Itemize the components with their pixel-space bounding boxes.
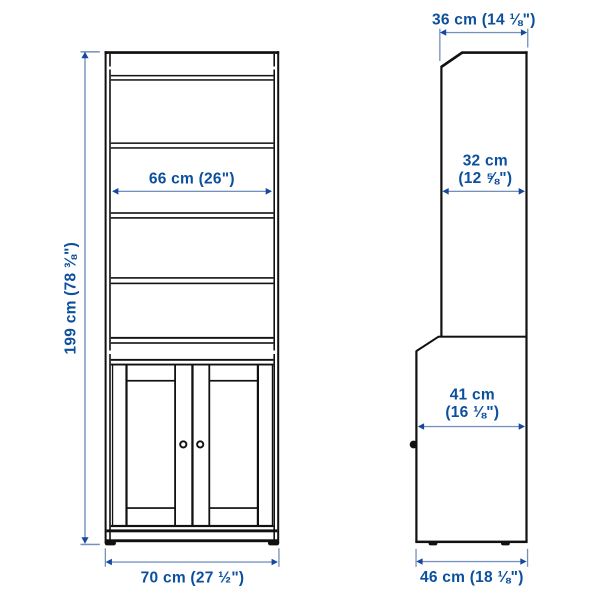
svg-text:41 cm: 41 cm xyxy=(450,386,495,403)
svg-text:199 cm (78 ⅜"): 199 cm (78 ⅜") xyxy=(62,242,79,355)
svg-text:46 cm (18 ⅛"): 46 cm (18 ⅛") xyxy=(420,569,524,586)
svg-text:32 cm: 32 cm xyxy=(463,153,508,170)
svg-text:(12 ⅝"): (12 ⅝") xyxy=(458,170,512,187)
svg-text:(16 ⅛"): (16 ⅛") xyxy=(445,404,499,421)
svg-text:66 cm (26"): 66 cm (26") xyxy=(149,170,235,187)
svg-text:36 cm (14 ⅛"): 36 cm (14 ⅛") xyxy=(432,11,536,28)
svg-text:70 cm (27 ½"): 70 cm (27 ½") xyxy=(141,569,245,586)
